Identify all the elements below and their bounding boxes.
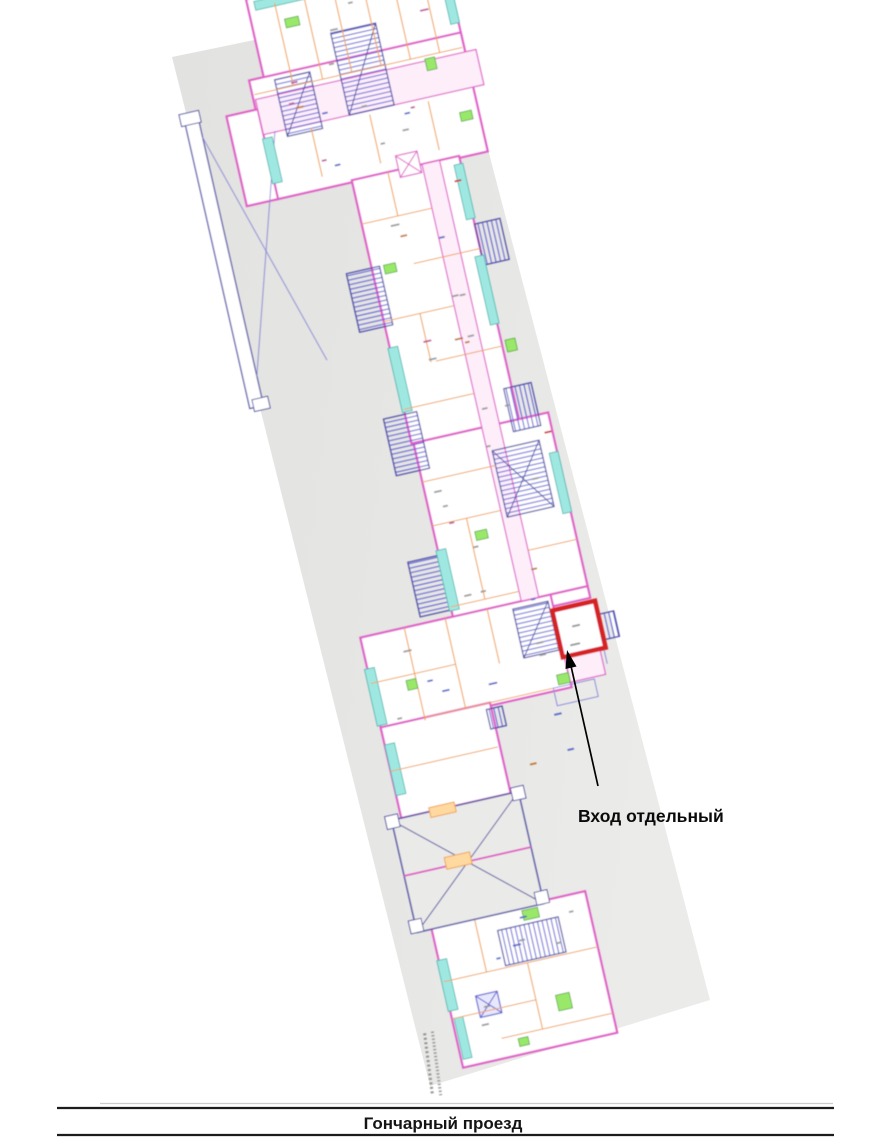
street-name-label: Гончарный проезд xyxy=(364,1114,523,1133)
entrance-highlight xyxy=(552,601,606,658)
screenshot-root: Вход отдельный Гончарный проезд xyxy=(0,0,880,1143)
floorplan-scan-image: Вход отдельный Гончарный проезд xyxy=(0,0,880,1143)
entrance-annotation-label: Вход отдельный xyxy=(578,806,724,826)
